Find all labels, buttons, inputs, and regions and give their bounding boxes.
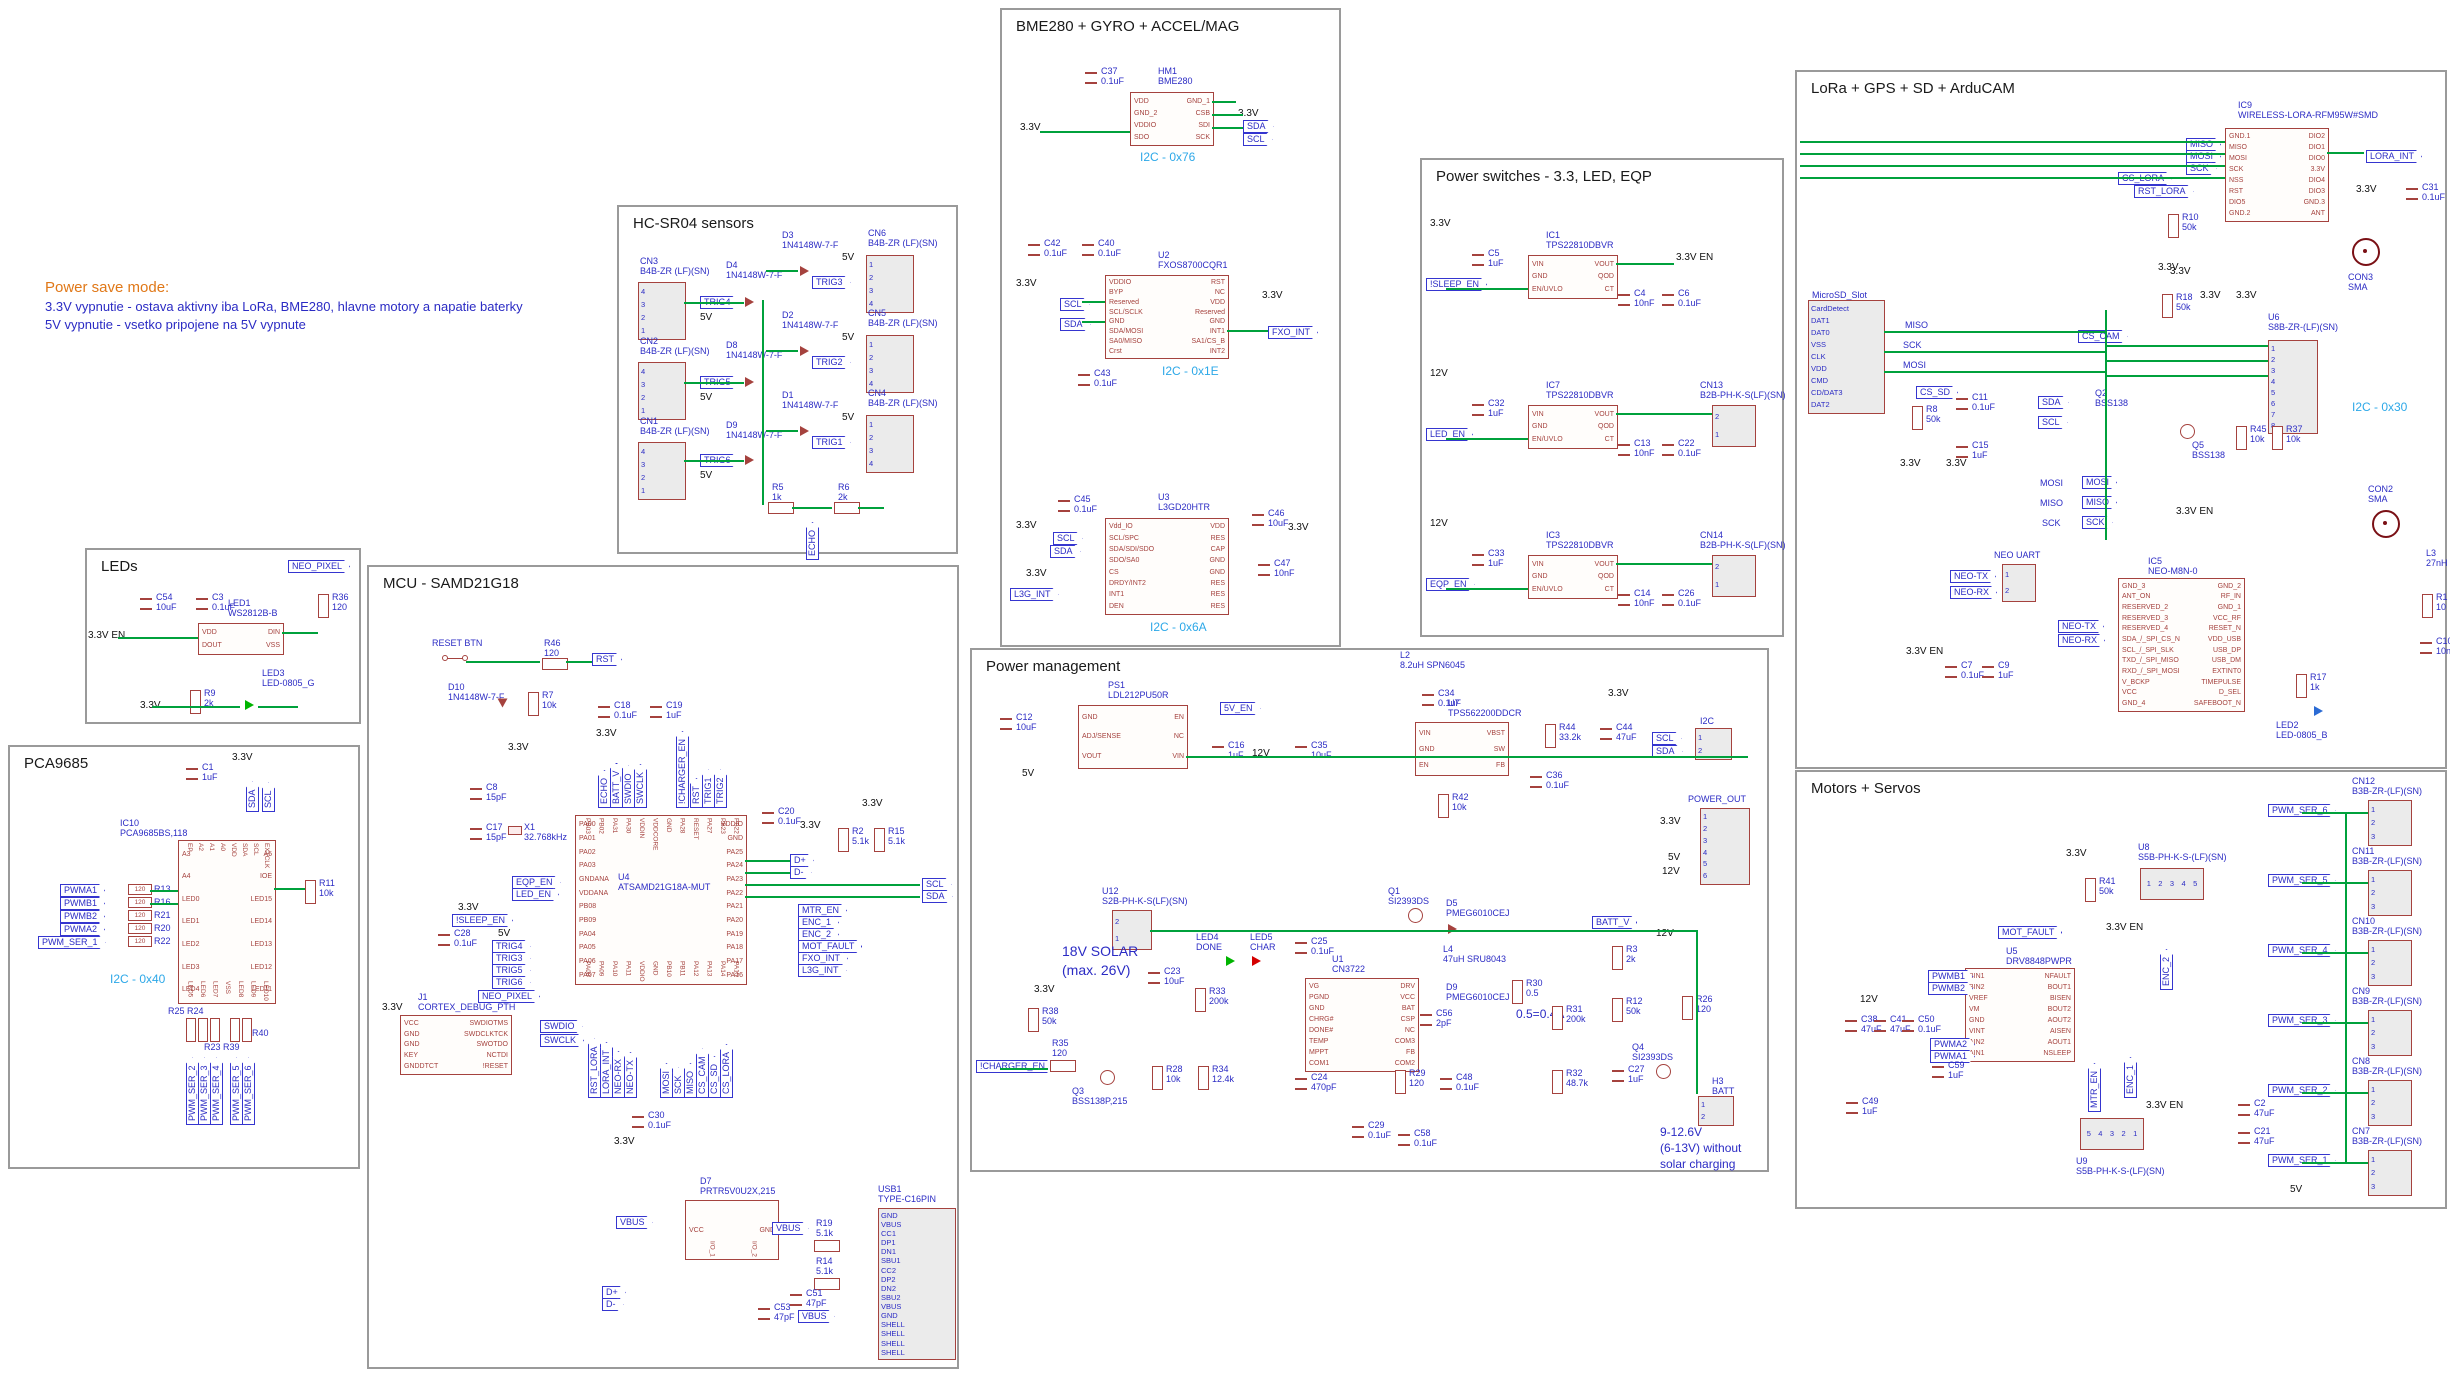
wire <box>1212 114 1243 116</box>
pin-a4: A4 <box>182 873 191 880</box>
wire <box>1616 263 1674 265</box>
power-label-5v: 5V <box>700 470 712 481</box>
pin-2: 2 <box>2005 587 2033 595</box>
net-flag-cs-sd: CS_SD <box>1916 386 1958 399</box>
wire <box>1082 321 1105 323</box>
component-label-cn14: CN14 B2B-PH-K-S(LF)(SN) <box>1700 530 1786 551</box>
capacitor-label-c50: C50 0.1uF <box>1918 1014 1941 1035</box>
pin-vin: VIN <box>1172 753 1184 760</box>
pin-5: 5 <box>1703 860 1747 868</box>
wire <box>1446 438 1528 440</box>
pin-2: 2 <box>2271 356 2315 364</box>
pin-reserved: Reserved <box>1195 309 1225 316</box>
annotation: 9-12.6V (6-13V) without solar charging <box>1660 1124 1741 1173</box>
power-label-5v: 5V <box>498 928 510 939</box>
net-flag-mosi: MOSI <box>2186 150 2221 163</box>
pin-gnd: GND <box>1209 569 1225 576</box>
capacitor-c25 <box>1295 942 1307 954</box>
power-label-5v: 5V <box>2290 1184 2302 1195</box>
power-label-12v: 12V <box>1430 518 1448 529</box>
ic-pa00: PA00PA01PA02PA03GNDANAVDDANAPB08PB09PA04… <box>575 815 747 985</box>
resistor-label-r20: R20 <box>154 923 171 933</box>
wire <box>1000 1068 1048 1070</box>
diode-icon <box>800 346 809 356</box>
pin-led3: LED3 <box>182 964 200 971</box>
net-flag-cs-cam: CS_CAM <box>696 1048 709 1098</box>
net-flag-enc-1: ENC_1 <box>798 916 839 929</box>
pin-pa11: PA11 <box>624 961 631 982</box>
i2c-address-label: I2C - 0x40 <box>110 972 165 986</box>
pin-vddin: VDDIN <box>638 818 645 851</box>
resistor-label-r28: R28 10k <box>1166 1064 1183 1085</box>
pin-6: 6 <box>2271 400 2315 408</box>
pin-vbst: VBST <box>1487 730 1505 737</box>
pin-vin: VIN <box>1419 730 1431 737</box>
pin-temp: TEMP <box>1309 1038 1328 1045</box>
net-flag-pwm-ser-3: PWM_SER_3 <box>198 1057 211 1125</box>
capacitor-c32 <box>1472 404 1484 416</box>
pin-3: 3 <box>869 447 911 455</box>
pin-pb22: PB22 <box>732 818 739 851</box>
capacitor-c6 <box>1662 294 1674 306</box>
pin-gnd-2: GND.2 <box>2229 210 2250 217</box>
pin-reserved-4: RESERVED_4 <box>2122 625 2168 632</box>
component-label-miso: MISO <box>1905 320 1928 330</box>
ic-vdd: VDDDOUTDINVSS <box>198 623 284 655</box>
pin-rxd-spi-mosi: RXD_/_SPI_MOSI <box>2122 668 2180 675</box>
power-label-3-3v: 3.3V <box>1020 122 1041 133</box>
wire <box>762 300 764 505</box>
capacitor-label-c21: C21 47uF <box>2254 1126 2275 1147</box>
pin-i-o-1: I/O_1 <box>708 1241 715 1257</box>
pin-cc1: CC1 <box>881 1230 953 1238</box>
net-flag-vbus: VBUS <box>798 1310 835 1323</box>
pin-en-uvlo: EN/UVLO <box>1532 436 1563 443</box>
net-flag-batt-v: BATT_V <box>610 763 623 808</box>
power-label-3-3v: 3.3V <box>1016 520 1037 531</box>
pin-2: 2 <box>2121 1130 2125 1138</box>
pin-din: DIN <box>268 629 280 636</box>
component-label-l2: L2 8.2uH SPN6045 <box>1400 650 1465 671</box>
pin-3: 3 <box>2110 1130 2114 1138</box>
component-label-r19: R19 5.1k <box>816 1218 833 1239</box>
pin-1: 1 <box>2271 345 2315 353</box>
component-label-led4: LED4 DONE <box>1196 932 1222 953</box>
resistor-label-r36: R36 120 <box>332 592 349 613</box>
capacitor-label-c18: C18 0.1uF <box>614 700 637 721</box>
pin-shell: SHELL <box>881 1340 953 1348</box>
pin-vref: VREF <box>1969 995 1988 1002</box>
capacitor-label-c19: C19 1uF <box>666 700 683 721</box>
i2c-address-label: I2C - 0x76 <box>1140 150 1195 164</box>
power-label-3-3v: 3.3V <box>1034 984 1055 995</box>
pin-fb: FB <box>1406 1049 1415 1056</box>
capacitor-c33 <box>1472 554 1484 566</box>
component-label-q4: Q4 SI2393DS <box>1632 1042 1673 1063</box>
pin-led13: LED13 <box>251 941 272 948</box>
resistor-r9 <box>190 690 201 714</box>
resistor-r22: 120 <box>128 936 152 947</box>
component-label-j1: J1 CORTEX_DEBUG_PTH <box>418 992 515 1013</box>
wire <box>466 661 540 663</box>
pin-2: 2 <box>869 354 911 362</box>
pin-ct: CT <box>1605 586 1614 593</box>
pin-res: RES <box>1211 591 1225 598</box>
pin-4: 4 <box>869 380 911 388</box>
pin-3: 3 <box>869 287 911 295</box>
resistor-label-r41: R41 50k <box>2099 876 2116 897</box>
pin-swdiotms: SWDIOTMS <box>470 1020 509 1027</box>
pin-extint0: EXTINT0 <box>2212 668 2241 675</box>
pin-sw: SW <box>1494 746 1505 753</box>
resistor-label-r3: R3 2k <box>1626 944 1638 965</box>
power-label-5v: 5V <box>700 312 712 323</box>
wire <box>150 890 178 892</box>
pin-vout: VOUT <box>1595 411 1614 418</box>
connector: 21 <box>1712 555 1756 597</box>
resistor-label-r12: R12 50k <box>1626 996 1643 1017</box>
schematic-canvas: Power save mode: 3.3V vypnutie - ostava … <box>0 0 2450 1375</box>
pin-en: EN <box>1419 762 1429 769</box>
pin-dio1: DIO1 <box>2309 144 2325 151</box>
net-flag-mosi: MOSI <box>660 1063 673 1098</box>
capacitor-label-c9: C9 1uF <box>1998 660 2014 681</box>
net-flag-pwm-ser-6: PWM_SER_6 <box>242 1057 255 1125</box>
capacitor-label-c36: C36 0.1uF <box>1546 770 1569 791</box>
pin-bout2: BOUT2 <box>2048 1006 2071 1013</box>
wire <box>2105 345 2268 347</box>
resistor <box>1050 1060 1076 1072</box>
capacitor-c18 <box>598 706 610 718</box>
component-label-cn3: CN3 B4B-ZR (LF)(SN) <box>640 256 710 277</box>
net-flag-rst: RST <box>592 653 622 666</box>
pin-en-uvlo: EN/UVLO <box>1532 586 1563 593</box>
ic-vin: VINGNDEN/UVLOVOUTQODCT <box>1528 405 1618 449</box>
ic-vdd: VDDGND_2VDDIOSDOGND_1CSBSDISCK <box>1130 92 1214 146</box>
wire <box>792 507 832 509</box>
capacitor-c19 <box>650 706 662 718</box>
power-label-3-3v: 3.3V <box>2356 184 2377 195</box>
pin-dio4: DIO4 <box>2309 177 2325 184</box>
component-label-led1: LED1 WS2812B-B <box>228 598 278 619</box>
pin-sbu2: SBU2 <box>881 1294 953 1302</box>
pin-2: 2 <box>1715 563 1753 571</box>
pin-4: 4 <box>2181 880 2185 888</box>
pin-pb09: PB09 <box>579 917 596 924</box>
capacitor-c5 <box>1472 254 1484 266</box>
pin-vcc: VCC <box>404 1020 419 1027</box>
net-flag-led-en: LED_EN <box>512 888 559 901</box>
pin-drv: DRV <box>1400 983 1415 990</box>
resistor-label-r22: R22 <box>154 936 171 946</box>
pin-3: 3 <box>1703 837 1747 845</box>
component-label-l4: L4 47uH SRU8043 <box>1443 944 1506 965</box>
pin-dat2: DAT2 <box>1811 401 1882 409</box>
component-label-i2c: I2C <box>1700 716 1714 726</box>
pin-gnd-3: GND_3 <box>2122 583 2145 590</box>
pin-6: 6 <box>1703 872 1747 880</box>
pin-a1: A1 <box>207 843 214 868</box>
capacitor-c11 <box>1956 398 1968 410</box>
pin-vddio: VDDIO <box>638 961 645 982</box>
net-flag-neo-pixel: NEO_PIXEL <box>288 560 350 573</box>
pin-fb: FB <box>1496 762 1505 769</box>
wire <box>274 888 305 890</box>
net-flag-swclk: SWCLK <box>634 764 647 808</box>
ic-vin: VINGNDEN/UVLOVOUTQODCT <box>1528 555 1618 599</box>
power-label-5v: 5V <box>842 252 854 263</box>
resistor-label-r32: R32 48.7k <box>1566 1068 1588 1089</box>
net-flag-trig3: TRIG3 <box>492 952 531 965</box>
pin-dout: DOUT <box>202 642 222 649</box>
pin-aout1: AOUT1 <box>2048 1039 2071 1046</box>
resistor-label-r1: R1 10 <box>2436 592 2448 613</box>
pin-ep: EP <box>185 843 192 868</box>
pin-qod: QOD <box>1598 573 1614 580</box>
net-flag-scl: SCL <box>262 782 275 812</box>
resistor-r12 <box>1612 998 1623 1022</box>
pin-a2: A2 <box>196 843 203 868</box>
net-flag-charger-en: !CHARGER_EN <box>976 1060 1053 1073</box>
net-flag-pwm-ser-6: PWM_SER_6 <box>2268 804 2336 817</box>
wire <box>1800 141 2225 143</box>
resistor-r11 <box>305 880 316 904</box>
wire <box>2302 1022 2368 1024</box>
pin-reset-n: RESET_N <box>2209 625 2241 632</box>
resistor-r32 <box>1552 1070 1563 1094</box>
pin-vcc-rf: VCC_RF <box>2213 615 2241 622</box>
net-flag-fxo-int: FXO_INT <box>798 952 848 965</box>
net-flag-enc-2: ENC_2 <box>798 928 839 941</box>
pin-sda-sdi-sdo: SDA/SDI/SDO <box>1109 546 1154 553</box>
net-flag-trig5: TRIG5 <box>492 964 531 977</box>
connector: 4321 <box>638 442 686 500</box>
pin-2: 2 <box>869 434 911 442</box>
net-flag-eqp-en: EQP_EN <box>512 876 561 889</box>
resistor <box>814 1240 840 1252</box>
pin-carddetect: CardDetect <box>1811 305 1882 313</box>
pin-3: 3 <box>2371 1043 2409 1051</box>
capacitor-c49 <box>1846 1102 1858 1114</box>
power-label-12v: 12V <box>1662 866 1680 877</box>
resistor-r36 <box>318 594 329 618</box>
pin-dio2: DIO2 <box>2309 133 2325 140</box>
pin-gnd: GND <box>1532 423 1548 430</box>
net-flag-mot-fault: MOT_FAULT <box>798 940 862 953</box>
ic-vin: VINGNDEN/UVLOVOUTQODCT <box>1528 255 1618 299</box>
mosfet-icon <box>2180 424 2195 439</box>
capacitor-label-c2: C2 47uF <box>2254 1098 2275 1119</box>
net-flag-sda: SDA <box>1060 318 1091 331</box>
component-label-d5: D5 PMEG6010CEJ <box>1446 898 1510 919</box>
net-flag-miso: MISO <box>2082 496 2117 509</box>
pin-pa03: PA03 <box>579 862 596 869</box>
pin-int2: INT2 <box>1210 348 1225 355</box>
pin-nc: NC <box>1215 289 1225 296</box>
net-flag-sck: SCK <box>2082 516 2113 529</box>
pin-2: 2 <box>2371 1029 2409 1037</box>
capacitor-label-c27: C27 1uF <box>1628 1064 1645 1085</box>
net-flag-5v-en: 5V_EN <box>1220 702 1261 715</box>
wire <box>1800 177 2225 179</box>
resistor-r44 <box>1545 724 1556 748</box>
pin-gnd-2: GND_2 <box>1134 110 1157 117</box>
pin-3: 3 <box>2170 880 2174 888</box>
capacitor-label-c30: C30 0.1uF <box>648 1110 671 1131</box>
pin-5: 5 <box>2087 1130 2091 1138</box>
net-flag-pwma1: PWMA1 <box>60 884 105 897</box>
pin-sa1-cs-b: SA1/CS_B <box>1192 338 1225 345</box>
pin-vout: VOUT <box>1595 561 1614 568</box>
net-flag-pwm-ser-2: PWM_SER_2 <box>186 1057 199 1125</box>
pin-ct: CT <box>1605 286 1614 293</box>
power-label-3-3v: 3.3V <box>800 820 821 831</box>
pin-en: EN <box>1174 714 1184 721</box>
pin-1: 1 <box>1698 734 1729 742</box>
pin-led9: LED9 <box>249 981 256 1001</box>
resistor-label-r18: R18 50k <box>2176 292 2193 313</box>
pin-pa31: PA31 <box>611 818 618 851</box>
net-flag-scl: SCL <box>1243 133 1273 146</box>
pin-gnd: GND <box>651 961 658 982</box>
pin-pa21: PA21 <box>726 903 743 910</box>
connector: 123 <box>2368 1080 2412 1126</box>
pin-usb-dm: USB_DM <box>2212 657 2241 664</box>
power-label-3-3v-en: 3.3V EN <box>2106 922 2143 933</box>
resistor <box>186 1018 196 1042</box>
pin-pb11: PB11 <box>678 961 685 982</box>
pin-2: 2 <box>2371 889 2409 897</box>
pin-dn1: DN1 <box>881 1248 953 1256</box>
capacitor-c28 <box>438 934 450 946</box>
pin-reset: RESET <box>692 818 699 851</box>
pin-sdo: SDO <box>1134 134 1149 141</box>
capacitor-label-c5: C5 1uF <box>1488 248 1504 269</box>
pin-nctdi: NCTDI <box>487 1052 508 1059</box>
pin-int1: INT1 <box>1210 328 1225 335</box>
resistor-label-r11: R11 10k <box>319 878 335 899</box>
resistor-r7 <box>528 692 539 716</box>
pin-i-o-2: I/O_2 <box>750 1241 757 1257</box>
pin-2: 2 <box>2371 1169 2409 1177</box>
capacitor-c9 <box>1982 666 1994 678</box>
pin-qod: QOD <box>1598 273 1614 280</box>
pin-gnd: GND <box>881 1312 953 1320</box>
net-flag-sda: SDA <box>922 890 953 903</box>
annotation: 18V SOLAR (max. 26V) <box>1062 942 1138 980</box>
pin-1: 1 <box>2371 1156 2409 1164</box>
wire <box>766 350 798 352</box>
net-flag-swclk: SWCLK <box>540 1034 584 1047</box>
component-label-q2: Q2 BSS138 <box>2095 388 2128 409</box>
pin-nc: NC <box>1405 1027 1415 1034</box>
capacitor-label-c26: C26 0.1uF <box>1678 588 1701 609</box>
pin-sck: SCK <box>1196 134 1210 141</box>
pin-3: 3 <box>641 301 683 309</box>
wire <box>2105 375 2268 377</box>
net-flag-neo-tx: NEO-TX <box>624 1052 637 1098</box>
pin-2: 2 <box>1701 1113 1731 1121</box>
pin-3: 3 <box>2271 367 2315 375</box>
capacitor-label-c31: C31 0.1uF <box>2422 182 2445 203</box>
block-title-mcu: MCU - SAMD21G18 <box>383 575 519 592</box>
ic-vdd-io: Vdd_IOSCL/SPCSDA/SDI/SDOSDO/SA0CSDRDY/IN… <box>1105 518 1229 615</box>
capacitor-label-c4: C4 10nF <box>1634 288 1655 309</box>
pin-pa15: PA15 <box>732 961 739 982</box>
capacitor-label-c56: C56 2pF <box>1436 1008 1453 1029</box>
capacitor-c30 <box>632 1116 644 1128</box>
block-title-lora-gps-sd-arducam: LoRa + GPS + SD + ArduCAM <box>1811 80 2015 97</box>
pin-scl-spc: SCL/SPC <box>1109 535 1139 542</box>
pin-gnd: GND <box>1109 318 1125 325</box>
wire <box>684 302 744 304</box>
capacitor-c43 <box>1078 374 1090 386</box>
component-label-cn13: CN13 B2B-PH-K-S(LF)(SN) <box>1700 380 1786 401</box>
led-icon <box>2314 706 2323 716</box>
connector: 123456 <box>1700 808 1750 885</box>
wire <box>2302 1162 2368 1164</box>
connector: 123 <box>2368 800 2412 846</box>
capacitor-c45 <box>1058 500 1070 512</box>
net-flag-sda: SDA <box>246 781 259 812</box>
pin-res: RES <box>1211 535 1225 542</box>
capacitor-c23 <box>1148 972 1160 984</box>
resistor <box>198 1018 208 1042</box>
pin-sda-mosi: SDA/MOSI <box>1109 328 1143 335</box>
wire <box>1227 330 1268 332</box>
resistor-r45 <box>2236 426 2247 450</box>
wire <box>1884 331 2105 333</box>
pin-vbus: VBUS <box>881 1303 953 1311</box>
pin-vddana: VDDANA <box>579 890 608 897</box>
connector: 54321 <box>2080 1118 2144 1150</box>
resistor-label-r42: R42 10k <box>1452 792 1469 813</box>
capacitor-c40 <box>1082 244 1094 256</box>
resistor <box>210 1018 220 1042</box>
sma-connector-icon <box>2352 238 2380 266</box>
pin-pa23: PA23 <box>726 876 743 883</box>
resistor-label-r34: R34 12.4k <box>1212 1064 1234 1085</box>
wire <box>1884 371 2105 373</box>
resistor-label-r37: R37 10k <box>2286 424 2303 445</box>
wire <box>1212 101 1236 103</box>
pin-sdi: SDI <box>1198 122 1210 129</box>
capacitor-label-c59: C59 1uF <box>1948 1060 1965 1081</box>
diode-icon <box>1448 924 1457 934</box>
net-flag-pwm-ser-4: PWM_SER_4 <box>2268 944 2336 957</box>
component-label-r35: R35 120 <box>1052 1038 1069 1059</box>
power-label-3-3v: 3.3V <box>382 1002 403 1013</box>
resistor <box>230 1018 240 1042</box>
led-icon <box>1252 956 1261 966</box>
net-flag-mosi: MOSI <box>2082 476 2117 489</box>
wire <box>1696 930 1698 1094</box>
net-flag-scl: SCL <box>2038 416 2068 429</box>
power-label-3-3v-en: 3.3V EN <box>1676 252 1713 263</box>
capacitor-c8 <box>470 788 482 800</box>
resistor-r8 <box>1912 406 1923 430</box>
component-label-cn8: CN8 B3B-ZR-(LF)(SN) <box>2352 1056 2422 1077</box>
pin-timepulse: TIMEPULSE <box>2201 679 2241 686</box>
capacitor-c24 <box>1295 1078 1307 1090</box>
i2c-address-label: I2C - 0x6A <box>1150 620 1207 634</box>
pin-csb: CSB <box>1196 110 1210 117</box>
pin-bout1: BOUT1 <box>2048 984 2071 991</box>
pin-sda-spi-cs-n: SDA_/_SPI_CS_N <box>2122 636 2180 643</box>
resistor-r13: 120 <box>128 884 152 895</box>
component-label-cn10: CN10 B3B-ZR-(LF)(SN) <box>2352 916 2422 937</box>
capacitor-label-c43: C43 0.1uF <box>1094 368 1117 389</box>
